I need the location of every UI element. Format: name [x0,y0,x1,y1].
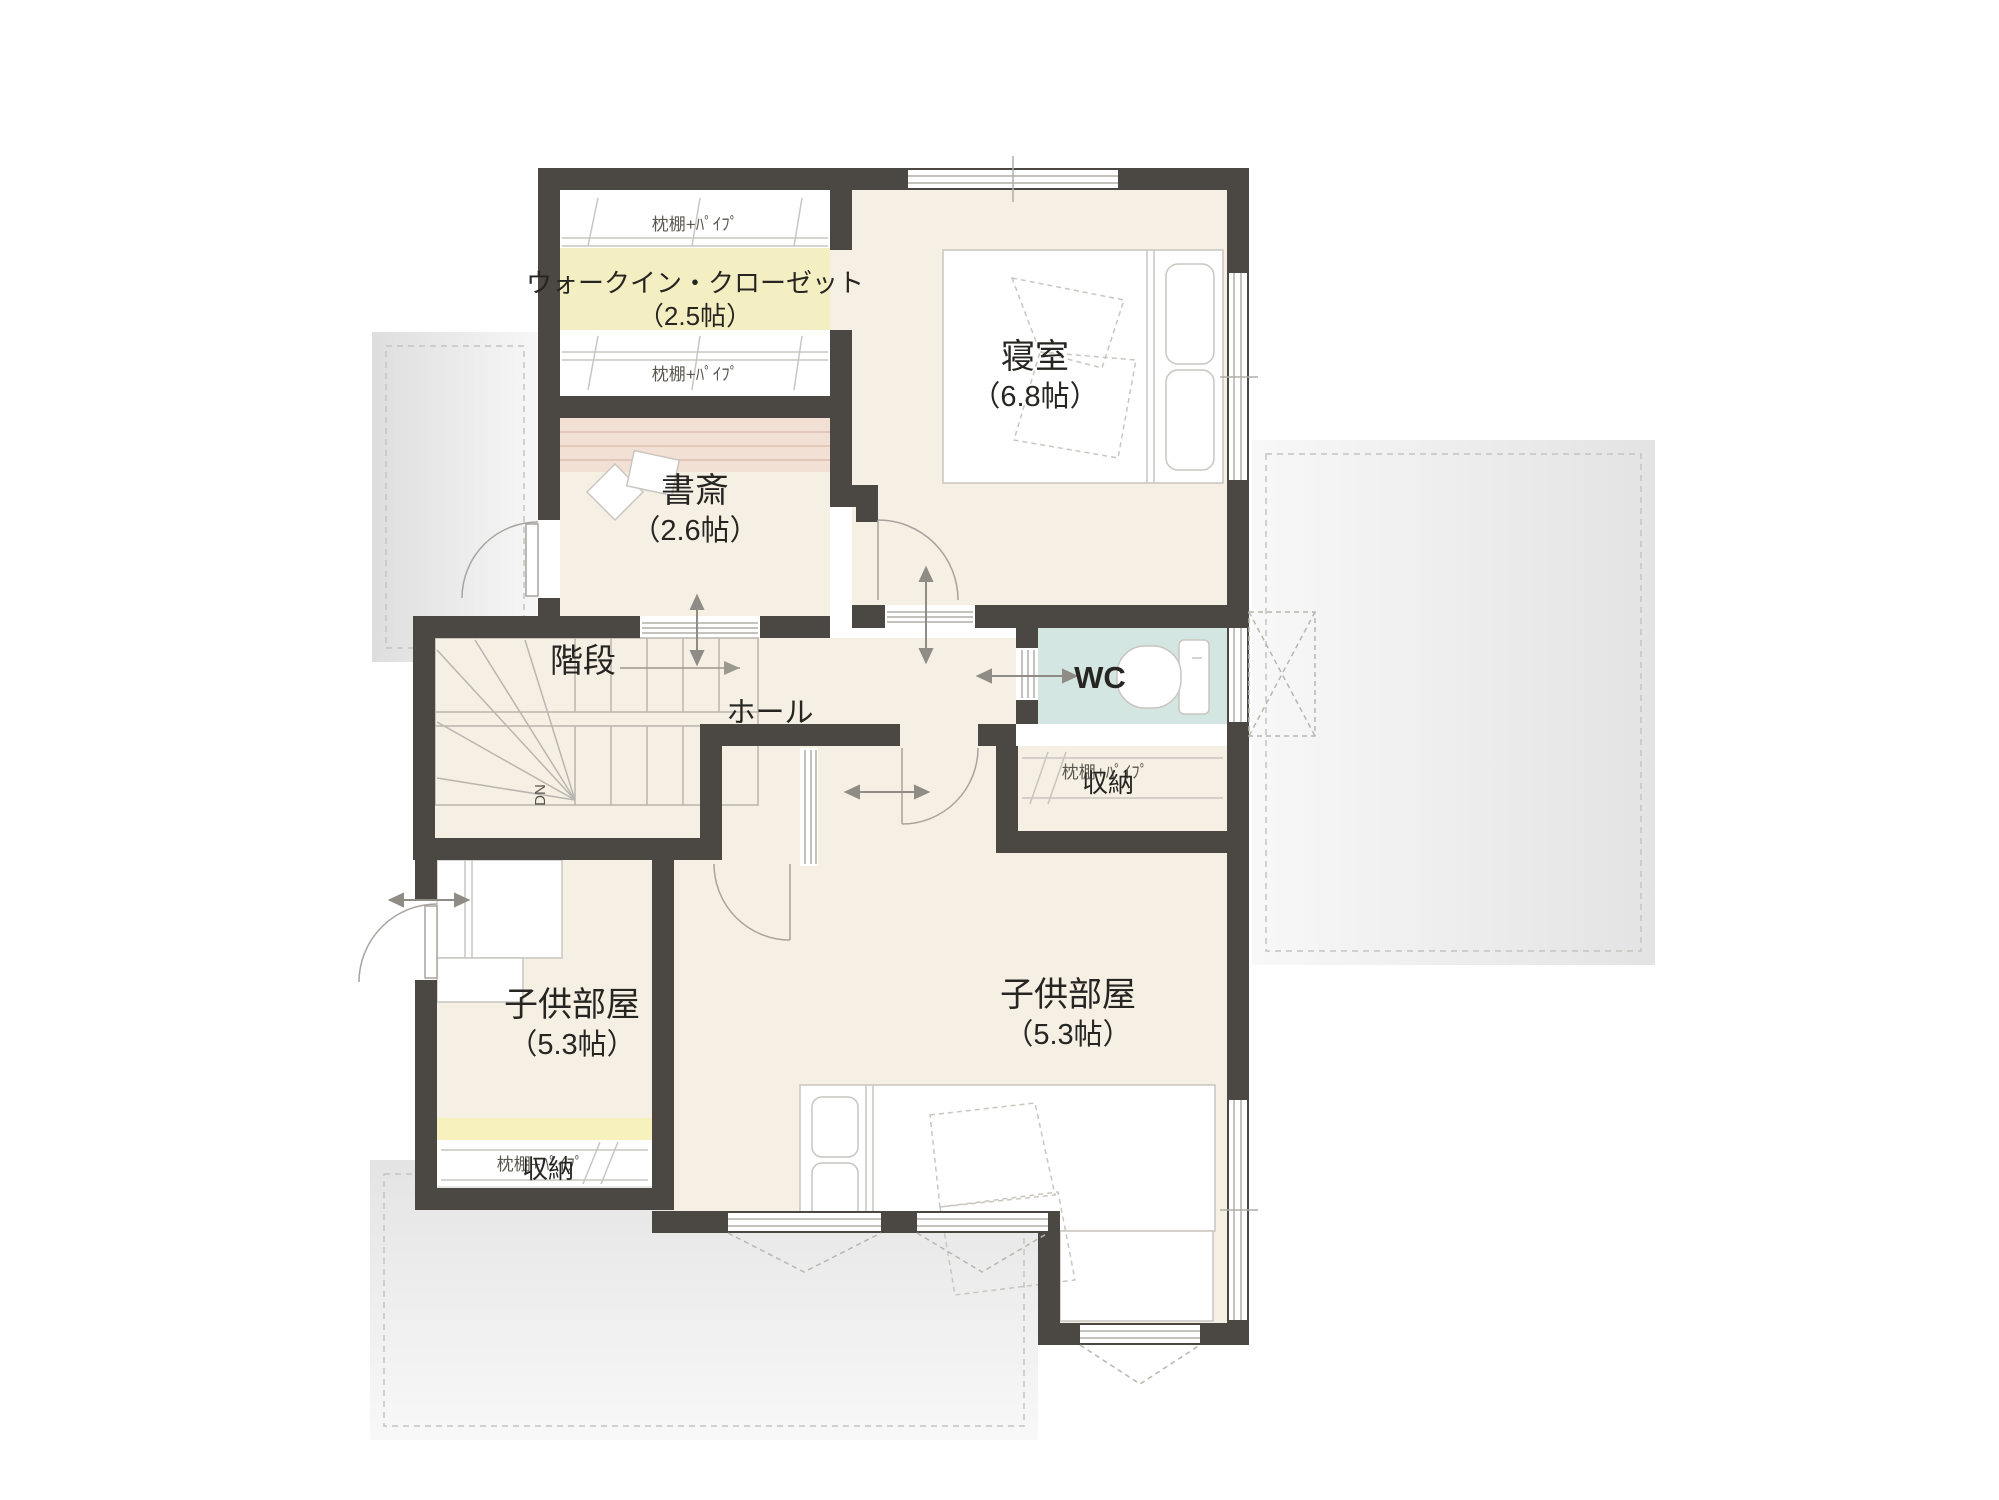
storage-right-label: 収納 [1082,768,1134,798]
wic-shelf-top-label: 枕棚+ﾊﾟｲﾌﾟ [652,215,738,234]
door-arc-balcony [359,904,437,982]
child-right-name: 子供部屋 [1000,976,1136,1014]
stairs-dn-label: DN [532,784,549,806]
stairs-label: 階段 [550,642,616,679]
floorplan-page: 枕棚+ﾊﾟｲﾌﾟ ウォークイン・クローゼット （2.5帖） 枕棚+ﾊﾟｲﾌﾟ 寝… [0,0,1999,1500]
bedroom-size: （6.8帖） [971,380,1098,413]
wic-name: ウォークイン・クローゼット [526,268,864,298]
child-left-name: 子供部屋 [504,986,640,1024]
roof-left [372,332,538,662]
hall-label: ホール [726,697,813,729]
floorplan-drawing: 枕棚+ﾊﾟｲﾌﾟ ウォークイン・クローゼット （2.5帖） 枕棚+ﾊﾟｲﾌﾟ 寝… [0,0,1999,1500]
bed-double [943,250,1223,483]
toilet [1117,640,1209,714]
storage-left-label: 収納 [522,1154,574,1184]
wc-label: WC [1074,660,1126,695]
study-size: （2.6帖） [631,514,758,547]
bedroom-name: 寝室 [1001,338,1069,376]
wic-size: （2.5帖） [638,301,752,331]
roof-right [1252,440,1655,965]
wic-shelf-bottom-label: 枕棚+ﾊﾟｲﾌﾟ [652,365,738,384]
study-name: 書斎 [661,472,729,510]
child-left-size: （5.3帖） [508,1028,635,1061]
child-right-size: （5.3帖） [1004,1018,1131,1051]
